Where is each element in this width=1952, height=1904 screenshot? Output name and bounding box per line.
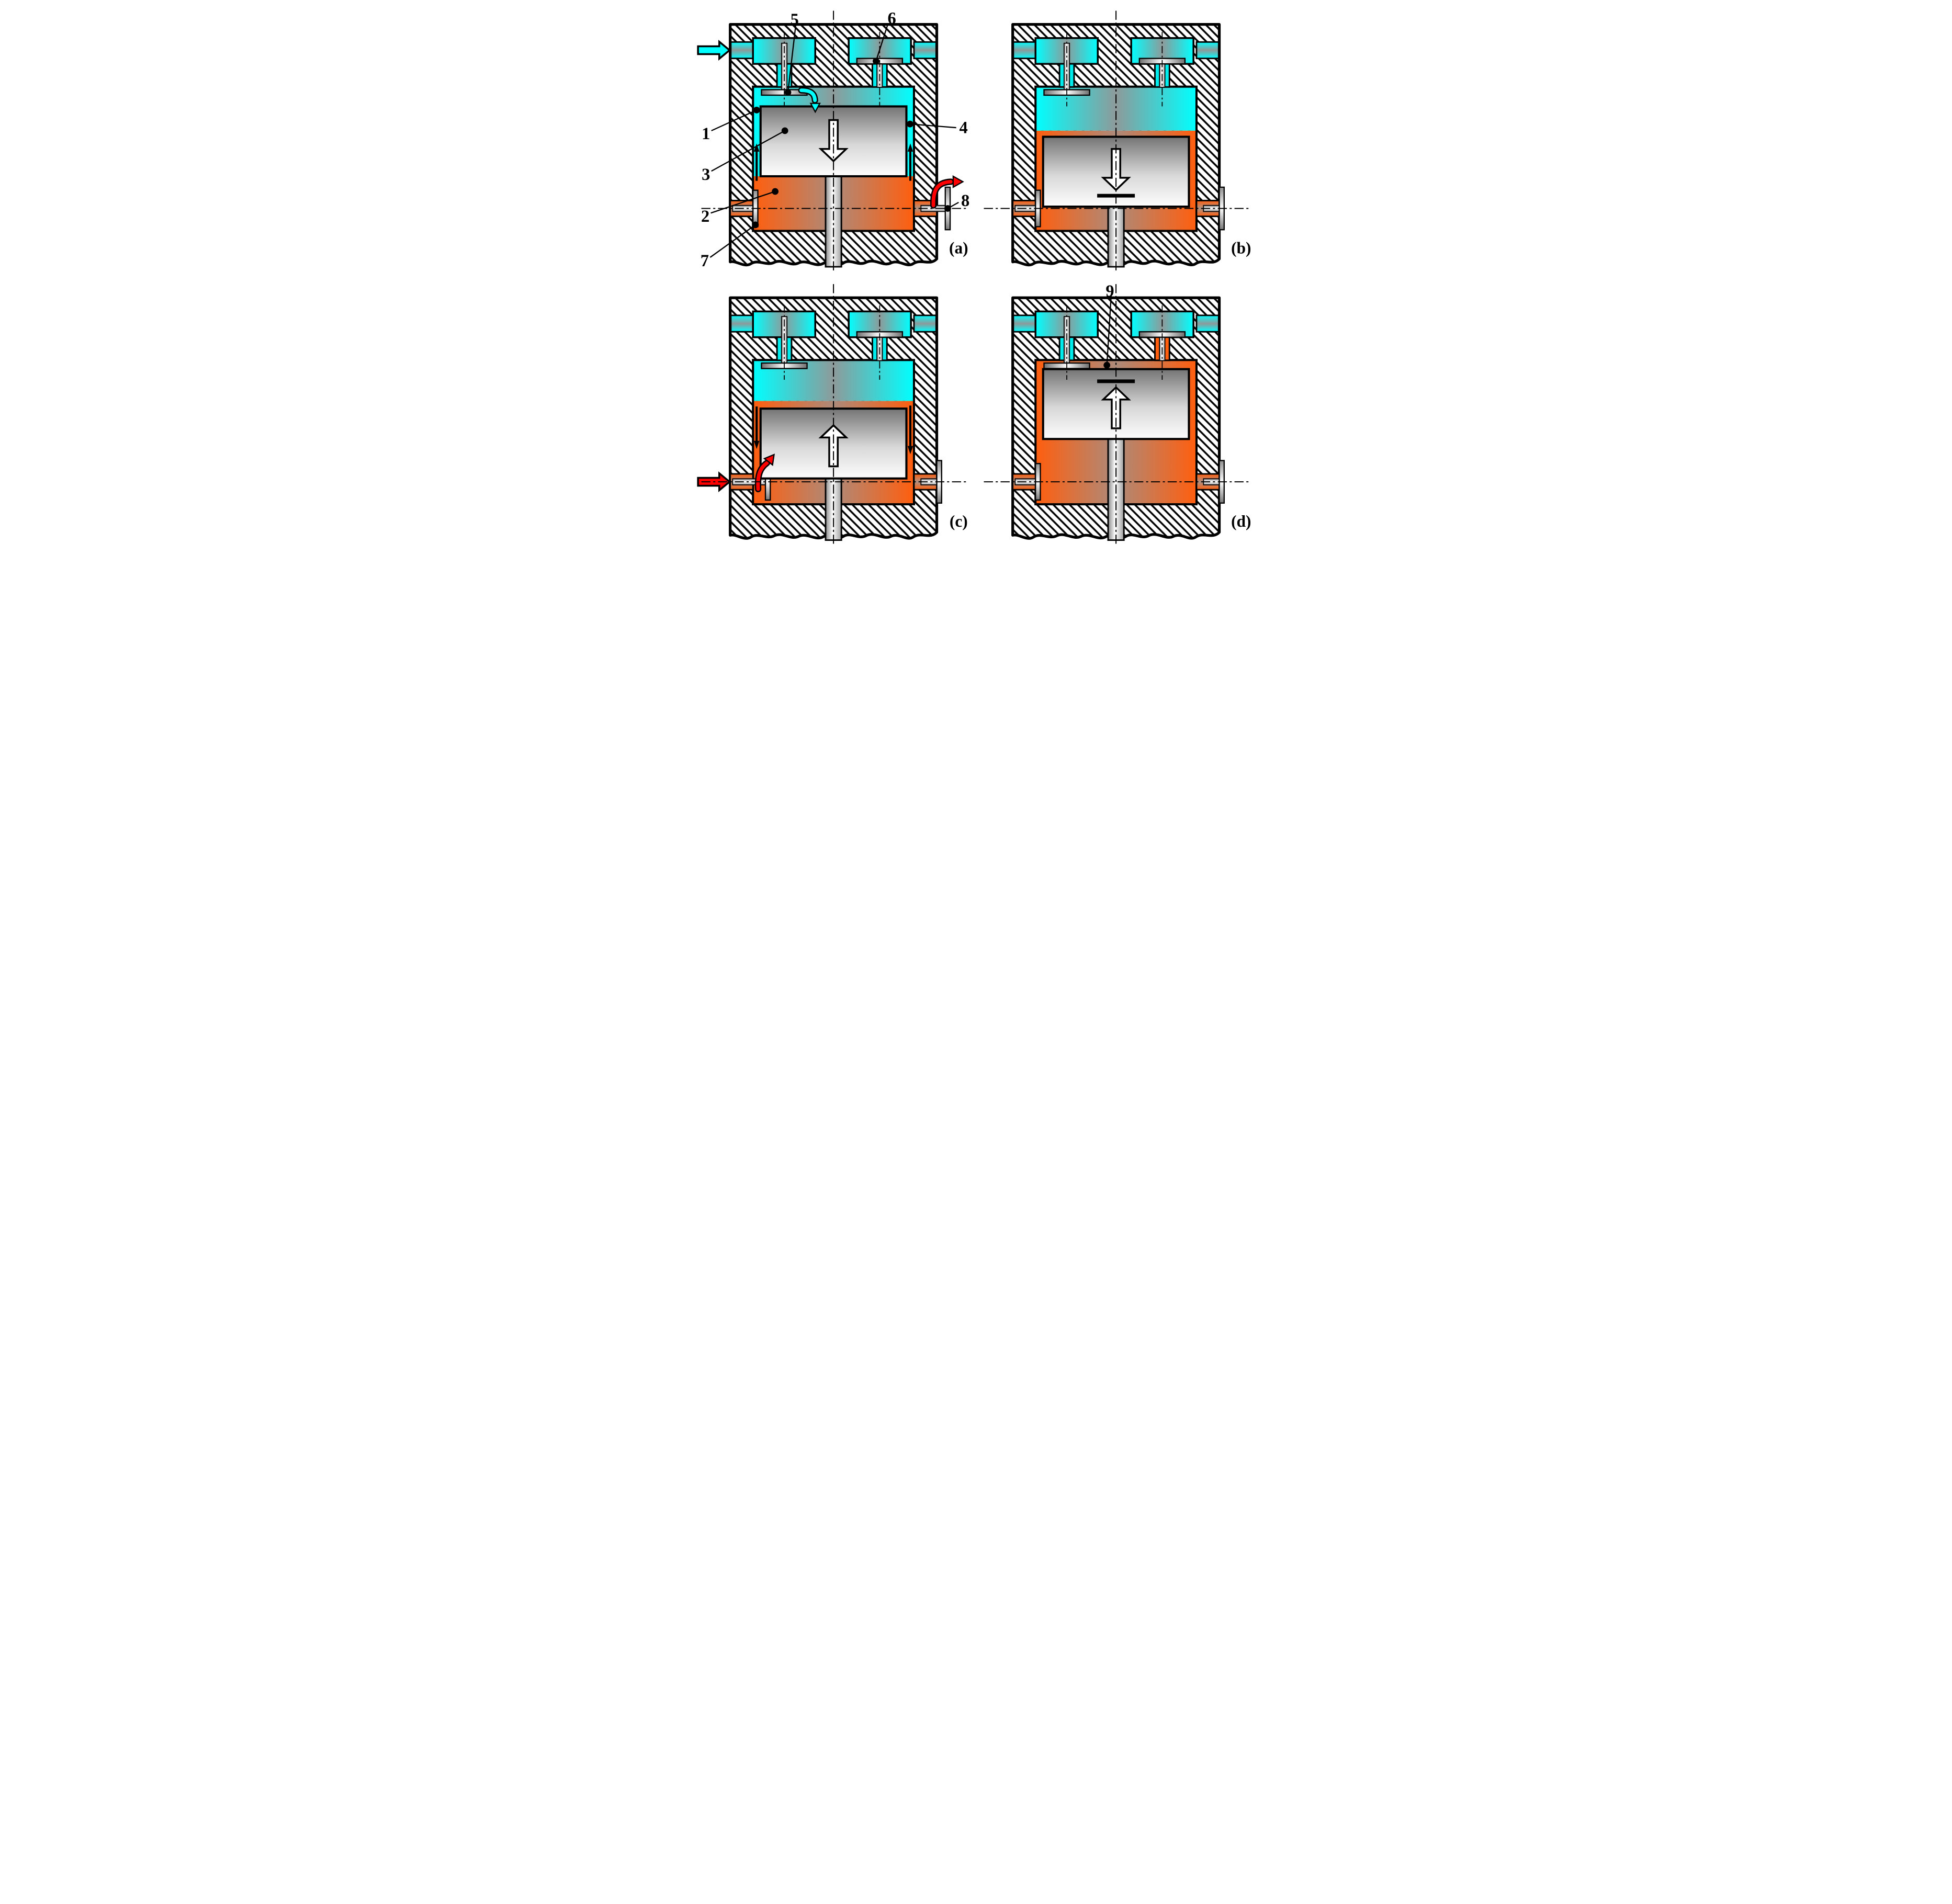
callout-dot-9 xyxy=(1103,362,1110,369)
panel-letter: (b) xyxy=(1231,239,1251,257)
panel-letter: (c) xyxy=(949,512,967,530)
callout-dot-6 xyxy=(873,58,879,65)
callout-6: 6 xyxy=(887,9,896,28)
callout-4: 4 xyxy=(959,119,967,138)
panel-c: (c) xyxy=(698,284,968,546)
callout-dot-5 xyxy=(784,89,791,96)
inlet-channel-left xyxy=(1013,42,1035,58)
callout-5: 5 xyxy=(790,10,798,29)
callout-1: 1 xyxy=(702,124,710,143)
callout-dot-4 xyxy=(907,121,913,128)
panel-a: 56134278(a) xyxy=(698,9,969,273)
callout-9: 9 xyxy=(1105,282,1114,301)
callout-7: 7 xyxy=(700,252,708,270)
inlet-channel-left xyxy=(1013,315,1035,332)
inlet-channel-left xyxy=(730,315,752,332)
diagram-canvas: 56134278(a)(b)(c)9(d) xyxy=(694,3,1259,550)
callout-dot-2 xyxy=(772,188,778,195)
callout-8: 8 xyxy=(961,191,969,210)
callout-dot-3 xyxy=(781,127,788,134)
inlet-channel-right xyxy=(913,42,935,58)
figure-container: 56134278(a)(b)(c)9(d) xyxy=(691,0,1262,553)
cold-gas-inlet-arrow xyxy=(698,42,729,59)
inlet-channel-right xyxy=(913,315,935,332)
callout-dot-1 xyxy=(753,107,760,114)
callout-dot-7 xyxy=(752,221,759,228)
panel-letter: (d) xyxy=(1231,512,1251,530)
inlet-channel-right xyxy=(1196,42,1218,58)
panel-d: 9(d) xyxy=(984,282,1251,546)
panel-b: (b) xyxy=(984,11,1251,273)
callout-dot-8 xyxy=(944,205,951,212)
callout-2: 2 xyxy=(701,207,709,226)
callout-3: 3 xyxy=(702,165,710,184)
inlet-channel-right xyxy=(1196,315,1218,332)
inlet-channel-left xyxy=(730,42,752,58)
panel-letter: (a) xyxy=(949,239,968,257)
